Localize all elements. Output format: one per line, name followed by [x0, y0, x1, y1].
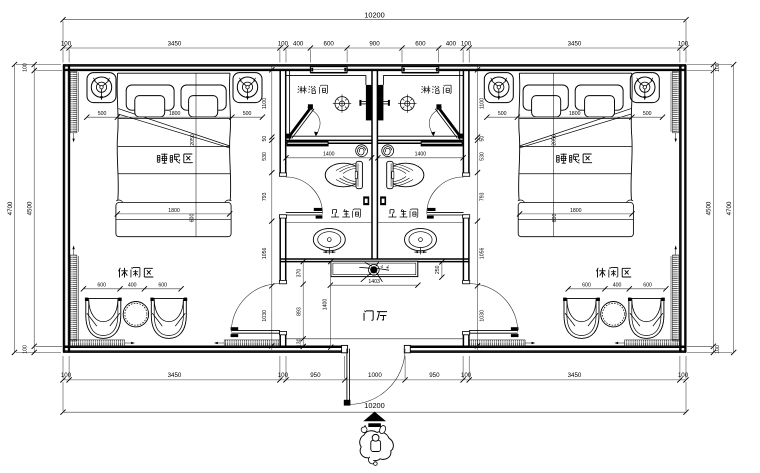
svg-text:400: 400 [128, 283, 137, 289]
svg-text:893: 893 [296, 307, 302, 316]
svg-text:3450: 3450 [568, 372, 582, 379]
svg-text:370: 370 [296, 269, 302, 278]
svg-text:100: 100 [23, 345, 29, 354]
svg-text:1403: 1403 [368, 279, 380, 285]
svg-text:600: 600 [97, 283, 106, 289]
svg-text:3450: 3450 [168, 372, 182, 379]
svg-text:1400: 1400 [323, 152, 335, 158]
svg-text:600: 600 [158, 283, 167, 289]
svg-text:100: 100 [678, 41, 689, 48]
svg-text:793: 793 [479, 192, 485, 201]
svg-text:1056: 1056 [262, 248, 268, 260]
svg-text:4700: 4700 [726, 201, 733, 215]
svg-text:1800: 1800 [169, 111, 181, 117]
svg-text:950: 950 [429, 372, 440, 379]
svg-text:600: 600 [324, 41, 335, 48]
svg-text:10200: 10200 [364, 401, 385, 410]
svg-text:1000: 1000 [368, 372, 382, 379]
svg-text:793: 793 [262, 192, 268, 201]
svg-text:2050: 2050 [551, 134, 557, 146]
svg-text:100: 100 [461, 41, 472, 48]
svg-text:500: 500 [98, 111, 107, 117]
svg-text:1400: 1400 [415, 152, 427, 158]
svg-text:4500: 4500 [26, 201, 33, 215]
svg-text:130: 130 [296, 338, 302, 347]
svg-text:4700: 4700 [7, 201, 14, 215]
svg-text:4500: 4500 [706, 201, 713, 215]
svg-text:530: 530 [479, 152, 485, 161]
svg-text:100: 100 [278, 41, 289, 48]
svg-text:600: 600 [582, 283, 591, 289]
svg-text:100: 100 [23, 63, 29, 72]
svg-text:950: 950 [310, 372, 321, 379]
svg-text:900: 900 [369, 41, 380, 48]
svg-text:10200: 10200 [364, 11, 385, 20]
svg-text:1800: 1800 [168, 208, 180, 214]
svg-text:50: 50 [479, 136, 485, 142]
svg-text:2050: 2050 [190, 134, 196, 146]
svg-text:400: 400 [446, 41, 457, 48]
svg-text:1100: 1100 [262, 98, 268, 109]
svg-text:600: 600 [643, 283, 652, 289]
svg-text:600: 600 [190, 214, 196, 223]
svg-text:600: 600 [552, 214, 558, 223]
svg-text:1800: 1800 [570, 208, 582, 214]
svg-text:1030: 1030 [479, 310, 485, 322]
svg-text:100: 100 [678, 372, 689, 379]
svg-text:1800: 1800 [569, 111, 581, 117]
svg-text:1030: 1030 [262, 310, 268, 322]
svg-text:500: 500 [643, 111, 652, 117]
svg-text:100: 100 [61, 372, 72, 379]
svg-text:500: 500 [498, 111, 507, 117]
svg-text:400: 400 [613, 283, 622, 289]
svg-text:500: 500 [243, 111, 252, 117]
svg-text:530: 530 [262, 152, 268, 161]
svg-text:1056: 1056 [479, 248, 485, 260]
svg-text:3450: 3450 [168, 41, 182, 48]
svg-text:3450: 3450 [568, 41, 582, 48]
svg-text:1100: 1100 [479, 98, 485, 109]
svg-text:250: 250 [435, 265, 441, 274]
svg-text:600: 600 [415, 41, 426, 48]
svg-text:400: 400 [293, 41, 304, 48]
svg-text:100: 100 [278, 372, 289, 379]
svg-text:100: 100 [461, 372, 472, 379]
svg-text:50: 50 [262, 136, 268, 142]
svg-text:1400: 1400 [322, 299, 328, 311]
svg-text:100: 100 [61, 41, 72, 48]
